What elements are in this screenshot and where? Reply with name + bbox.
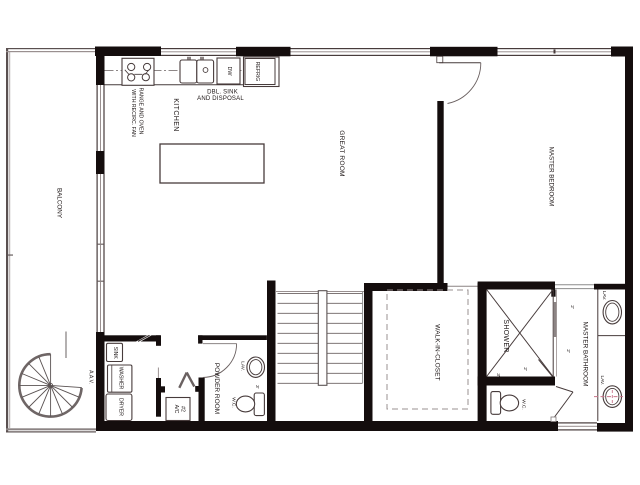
svg-text:2': 2' <box>522 367 528 371</box>
svg-text:WITH RECIRC. FAN: WITH RECIRC. FAN <box>130 89 136 137</box>
svg-text:AND DISPOSAL: AND DISPOSAL <box>197 96 244 102</box>
svg-text:MASTER BEDROOM: MASTER BEDROOM <box>548 147 555 206</box>
svg-text:POWDER ROOM: POWDER ROOM <box>213 363 220 414</box>
svg-text:2': 2' <box>565 349 571 353</box>
svg-text:WALK-IN-CLOSET: WALK-IN-CLOSET <box>434 324 441 380</box>
svg-text:LAV.: LAV. <box>240 361 246 371</box>
svg-text:RANGE AND OVEN: RANGE AND OVEN <box>138 88 144 135</box>
svg-text:MASTER BATHROOM: MASTER BATHROOM <box>581 322 588 387</box>
svg-text:DBL. SINK: DBL. SINK <box>207 90 238 96</box>
svg-text:KITCHEN: KITCHEN <box>172 98 179 132</box>
svg-text:W.C.: W.C. <box>520 399 526 409</box>
svg-text:#2: #2 <box>180 406 186 412</box>
svg-text:3': 3' <box>495 373 501 377</box>
svg-text:A/C: A/C <box>173 405 179 414</box>
svg-text:REFRIG: REFRIG <box>254 62 260 82</box>
svg-text:LAV.: LAV. <box>601 291 607 301</box>
svg-text:WASHER: WASHER <box>118 367 124 390</box>
svg-text:A.A.V.: A.A.V. <box>88 370 94 384</box>
svg-text:3': 3' <box>254 385 260 389</box>
svg-text:GREAT ROOM: GREAT ROOM <box>338 130 345 176</box>
svg-text:SHOWER: SHOWER <box>502 319 509 352</box>
svg-text:BALCONY: BALCONY <box>56 188 63 219</box>
svg-text:W.C.: W.C. <box>231 397 237 407</box>
svg-text:DW: DW <box>226 67 232 77</box>
svg-text:2': 2' <box>569 305 575 309</box>
svg-text:LAV.: LAV. <box>599 375 605 385</box>
svg-text:DRYER: DRYER <box>118 398 124 416</box>
svg-text:SINK: SINK <box>112 347 118 360</box>
